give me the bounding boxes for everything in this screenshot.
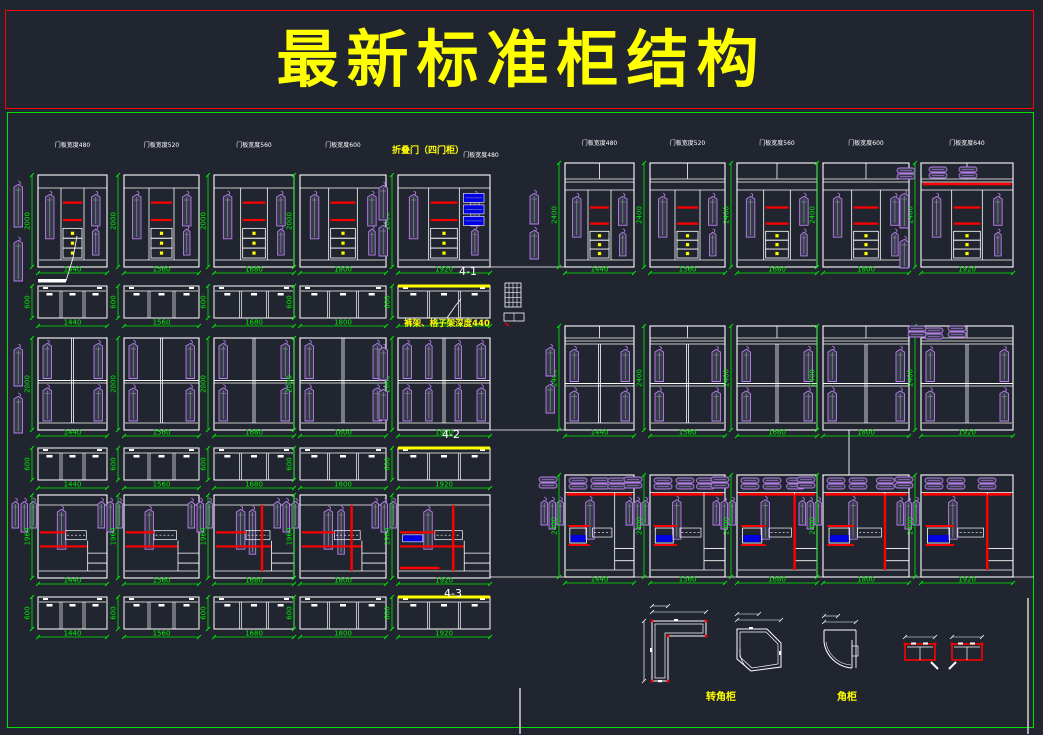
- top-cabinet-1560: 1560600: [110, 284, 202, 328]
- top-cabinet-1560: 1560600: [110, 595, 202, 639]
- grid-cubby-detail: [504, 283, 524, 326]
- svg-text:1680: 1680: [768, 429, 786, 437]
- svg-text:600: 600: [286, 606, 294, 619]
- wardrobe-elevation-1440: 14402400: [539, 473, 636, 585]
- svg-text:转角柜: 转角柜: [706, 690, 736, 703]
- svg-text:2400: 2400: [723, 369, 731, 387]
- top-cabinet-1920: 1920600: [384, 595, 493, 639]
- wardrobes-2400-sliding: 1440240015602400168024001800240019202400: [551, 324, 1016, 438]
- svg-text:门板宽度480: 门板宽度480: [463, 151, 499, 159]
- svg-text:2400: 2400: [907, 517, 915, 535]
- wardrobe-elevation-1680: 16802000: [200, 336, 297, 438]
- svg-text:1920: 1920: [958, 576, 976, 584]
- svg-text:1440: 1440: [591, 266, 609, 274]
- svg-text:2400: 2400: [809, 206, 817, 224]
- corner-cabinet-plans: [642, 604, 984, 683]
- top-cabinet-1800: 1800600: [286, 284, 389, 328]
- svg-text:600: 600: [24, 295, 32, 308]
- wardrobes-2400-combo: 1440240015602400168024001800240019202400: [539, 473, 1015, 585]
- wardrobe-elevation-1680: 16802000门板宽度560: [200, 141, 297, 275]
- svg-text:1800: 1800: [334, 429, 352, 437]
- svg-text:1560: 1560: [679, 429, 697, 437]
- svg-text:600: 600: [110, 606, 118, 619]
- wardrobe-elevation-1680: 16802400: [711, 473, 819, 585]
- svg-text:折叠门（四门柜）: 折叠门（四门柜）: [392, 144, 464, 156]
- svg-text:角柜: 角柜: [837, 690, 857, 703]
- svg-text:1800: 1800: [334, 630, 352, 638]
- svg-text:2400: 2400: [551, 206, 559, 224]
- svg-text:2400: 2400: [636, 206, 644, 224]
- wardrobe-elevation-1440: 14402000门板宽度480: [24, 141, 110, 275]
- wardrobes-2400-three-door: 14402400门板宽度48015602400门板宽度52016802400门板…: [551, 139, 1016, 275]
- top-cabinet-1440: 1440600: [24, 595, 110, 639]
- top-cabinet-1440: 1440600: [24, 284, 110, 328]
- svg-text:1680: 1680: [245, 319, 263, 327]
- svg-text:门板宽度600: 门板宽度600: [325, 141, 361, 149]
- svg-text:2400: 2400: [907, 369, 915, 387]
- wardrobe-elevation-1800: 18002000门板宽度600: [286, 141, 389, 275]
- svg-text:600: 600: [384, 295, 392, 308]
- top-cabinet-1680: 1680600: [200, 595, 297, 639]
- wardrobe-elevation-1680: 16802400门板宽度560: [723, 139, 820, 275]
- svg-text:1560: 1560: [679, 266, 697, 274]
- wardrobe-elevation-1920: 19202400门板宽度640: [907, 139, 1016, 275]
- svg-text:裤架、格子架深度440: 裤架、格子架深度440: [403, 318, 490, 329]
- wardrobe-elevation-1920: 19202400: [907, 324, 1016, 438]
- svg-text:1440: 1440: [591, 576, 609, 584]
- wardrobe-elevation-1920: 19202000: [384, 336, 493, 438]
- svg-text:1440: 1440: [64, 266, 82, 274]
- svg-text:600: 600: [24, 457, 32, 470]
- svg-text:2000: 2000: [286, 212, 294, 230]
- svg-text:2400: 2400: [809, 369, 817, 387]
- svg-text:1680: 1680: [245, 266, 263, 274]
- wardrobe-elevation-1560: 15601960: [98, 493, 201, 586]
- svg-text:1440: 1440: [591, 429, 609, 437]
- svg-text:1960: 1960: [200, 528, 208, 546]
- svg-text:门板宽度520: 门板宽度520: [144, 141, 180, 149]
- svg-text:1800: 1800: [857, 429, 875, 437]
- wardrobe-elevation-1920: 19202000: [384, 173, 493, 275]
- wardrobe-elevation-1560: 15602000门板宽度520: [110, 141, 202, 275]
- svg-text:1800: 1800: [334, 319, 352, 327]
- wardrobe-elevation-1440: 14402400门板宽度480: [551, 139, 637, 275]
- svg-text:1960: 1960: [384, 528, 392, 546]
- svg-text:1560: 1560: [153, 429, 171, 437]
- svg-text:2000: 2000: [110, 375, 118, 393]
- svg-text:1800: 1800: [857, 266, 875, 274]
- svg-text:1920: 1920: [435, 577, 453, 585]
- wardrobe-drawings-layer: 14402000门板宽度480144060015602000门板宽度520156…: [0, 0, 1043, 735]
- svg-text:1560: 1560: [153, 577, 171, 585]
- svg-text:1920: 1920: [958, 429, 976, 437]
- svg-text:1440: 1440: [64, 577, 82, 585]
- svg-text:1960: 1960: [286, 528, 294, 546]
- wardrobe-elevation-1560: 15602400: [624, 473, 727, 585]
- svg-text:2400: 2400: [636, 517, 644, 535]
- svg-text:1680: 1680: [768, 266, 786, 274]
- svg-text:2000: 2000: [286, 375, 294, 393]
- svg-text:门板宽度560: 门板宽度560: [236, 141, 272, 149]
- svg-text:600: 600: [384, 457, 392, 470]
- svg-text:门板宽度640: 门板宽度640: [949, 139, 985, 147]
- svg-text:2400: 2400: [636, 369, 644, 387]
- top-cabinet-1800: 1800600: [286, 446, 389, 490]
- svg-text:1680: 1680: [245, 481, 263, 489]
- svg-text:1560: 1560: [679, 576, 697, 584]
- wardrobe-elevation-1440: 14402400: [551, 324, 637, 438]
- svg-text:1960: 1960: [24, 528, 32, 546]
- svg-text:门板宽度560: 门板宽度560: [759, 139, 795, 147]
- svg-text:1920: 1920: [958, 266, 976, 274]
- top-cabinet-1440: 1440600: [24, 446, 110, 490]
- top-cabinet-1680: 1680600: [200, 284, 297, 328]
- svg-text:600: 600: [110, 457, 118, 470]
- wardrobes-1960-combo: 1440196014406001560196015606001680196016…: [12, 493, 492, 639]
- wardrobe-elevation-1920: 19201960: [372, 493, 492, 586]
- top-cabinet-1920: 1920600: [384, 446, 493, 490]
- svg-text:1560: 1560: [153, 266, 171, 274]
- wardrobe-elevation-1560: 15602000: [110, 336, 202, 438]
- svg-text:1680: 1680: [245, 429, 263, 437]
- svg-text:1560: 1560: [153, 630, 171, 638]
- wardrobe-elevation-1800: 18002400: [809, 324, 912, 438]
- svg-text:1560: 1560: [153, 319, 171, 327]
- svg-text:门板宽度600: 门板宽度600: [848, 139, 884, 147]
- svg-text:1800: 1800: [334, 481, 352, 489]
- svg-text:2000: 2000: [110, 212, 118, 230]
- wardrobe-elevation-1560: 15602400: [636, 324, 728, 438]
- svg-text:4-2: 4-2: [442, 428, 460, 441]
- svg-text:门板宽度480: 门板宽度480: [582, 139, 618, 147]
- svg-text:门板宽度480: 门板宽度480: [55, 141, 91, 149]
- wardrobes-2000-sliding: 1440200014406001560200015606001680200016…: [24, 336, 493, 490]
- svg-text:600: 600: [200, 606, 208, 619]
- svg-text:2400: 2400: [551, 517, 559, 535]
- svg-text:1440: 1440: [64, 429, 82, 437]
- wardrobe-elevation-1800: 18002400门板宽度600: [809, 139, 912, 275]
- svg-text:1920: 1920: [435, 266, 453, 274]
- top-cabinet-1560: 1560600: [110, 446, 202, 490]
- svg-text:600: 600: [384, 606, 392, 619]
- svg-text:1800: 1800: [857, 576, 875, 584]
- svg-text:2400: 2400: [723, 517, 731, 535]
- wardrobe-elevation-1920: 19202400: [895, 473, 1015, 585]
- svg-text:1920: 1920: [435, 630, 453, 638]
- wardrobe-elevation-1440: 14401960: [12, 493, 109, 586]
- svg-text:1440: 1440: [64, 630, 82, 638]
- svg-text:600: 600: [286, 457, 294, 470]
- svg-text:2400: 2400: [723, 206, 731, 224]
- svg-text:2000: 2000: [24, 212, 32, 230]
- svg-text:2400: 2400: [809, 517, 817, 535]
- wardrobes-2000-three-door: 14402000门板宽度480144060015602000门板宽度520156…: [24, 141, 493, 328]
- wardrobe-elevation-1680: 16802400: [723, 324, 820, 438]
- wardrobe-elevation-1800: 18002000: [286, 336, 389, 438]
- svg-text:1800: 1800: [334, 266, 352, 274]
- svg-text:2000: 2000: [200, 375, 208, 393]
- svg-text:门板宽度520: 门板宽度520: [670, 139, 706, 147]
- svg-text:600: 600: [286, 295, 294, 308]
- svg-text:1680: 1680: [768, 576, 786, 584]
- svg-text:600: 600: [200, 457, 208, 470]
- svg-text:1920: 1920: [435, 481, 453, 489]
- svg-text:1680: 1680: [245, 577, 263, 585]
- top-cabinet-1680: 1680600: [200, 446, 297, 490]
- top-cabinet-1800: 1800600: [286, 595, 389, 639]
- svg-text:2000: 2000: [200, 212, 208, 230]
- svg-text:600: 600: [200, 295, 208, 308]
- svg-text:1440: 1440: [64, 319, 82, 327]
- svg-text:1440: 1440: [64, 481, 82, 489]
- wardrobe-elevation-1560: 15602400门板宽度520: [636, 139, 728, 275]
- svg-text:1560: 1560: [153, 481, 171, 489]
- svg-text:1800: 1800: [334, 577, 352, 585]
- svg-text:4-1: 4-1: [459, 265, 477, 278]
- svg-text:1960: 1960: [110, 528, 118, 546]
- svg-text:2000: 2000: [24, 375, 32, 393]
- svg-text:4-3: 4-3: [444, 587, 462, 600]
- wardrobe-elevation-1440: 14402000: [24, 336, 110, 438]
- svg-text:600: 600: [110, 295, 118, 308]
- svg-text:1680: 1680: [245, 630, 263, 638]
- svg-text:600: 600: [24, 606, 32, 619]
- cad-drawing-canvas[interactable]: 最新标准柜结构 14402000门板宽度480144060015602000门板…: [0, 0, 1043, 735]
